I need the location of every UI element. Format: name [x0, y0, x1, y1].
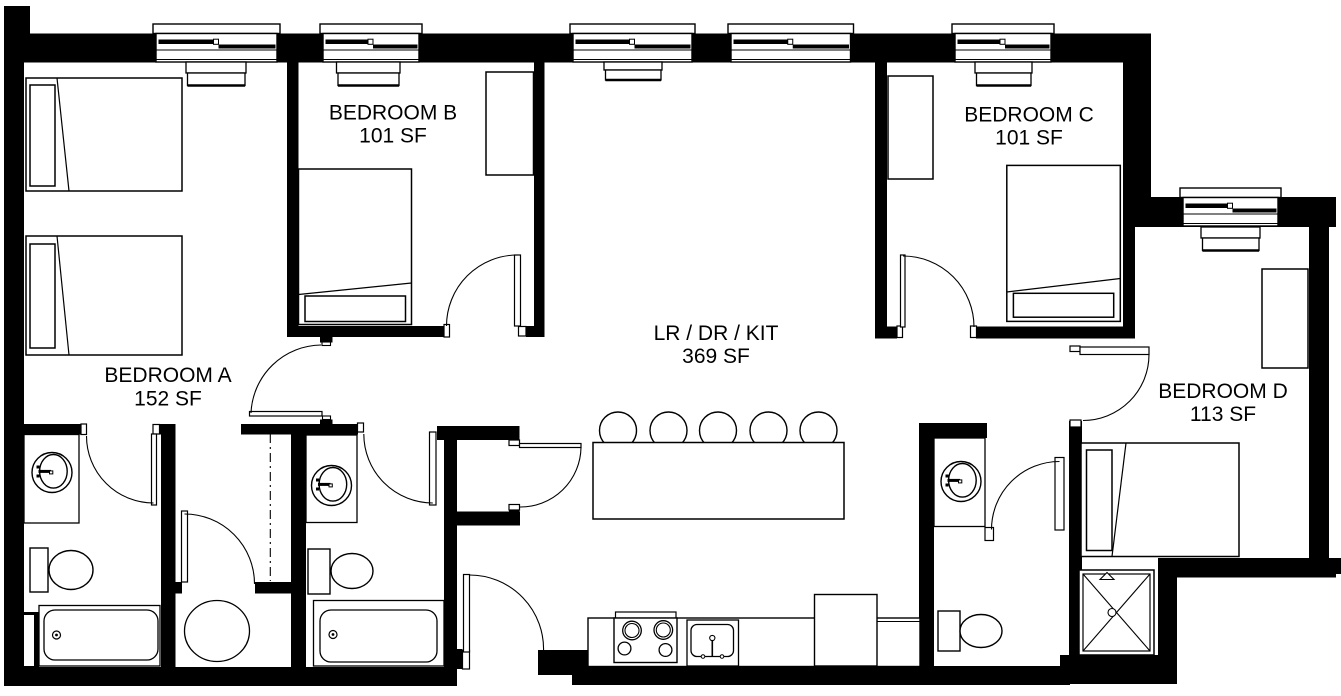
svg-text:113 SF: 113 SF	[1190, 403, 1256, 426]
svg-text:152 SF: 152 SF	[134, 388, 202, 411]
svg-text:BEDROOM D: BEDROOM D	[1158, 380, 1288, 403]
svg-text:BEDROOM A: BEDROOM A	[104, 364, 231, 387]
svg-text:101 SF: 101 SF	[995, 127, 1063, 150]
svg-text:BEDROOM C: BEDROOM C	[964, 104, 1094, 127]
svg-text:LR / DR / KIT: LR / DR / KIT	[654, 322, 779, 345]
svg-text:BEDROOM B: BEDROOM B	[329, 102, 457, 125]
svg-text:369 SF: 369 SF	[682, 345, 750, 368]
svg-text:101 SF: 101 SF	[359, 125, 427, 148]
